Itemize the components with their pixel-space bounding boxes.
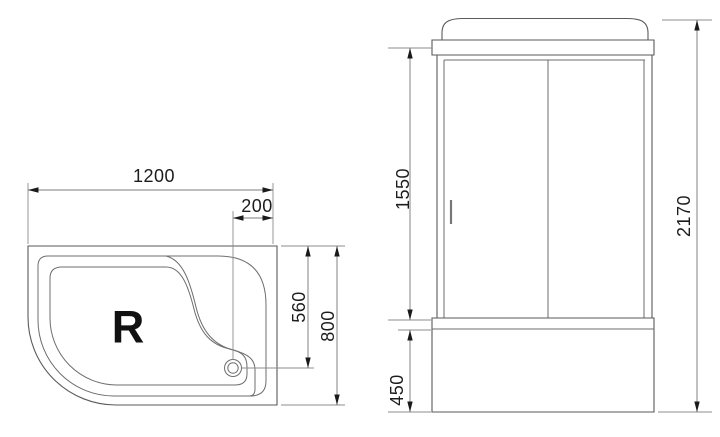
- dim-label-width: 1200: [133, 166, 175, 186]
- technical-drawing-page: 1200 200 560 800 R: [0, 0, 720, 437]
- tray-seat-curve: [166, 256, 255, 396]
- drain-outer-circle: [225, 360, 242, 377]
- dim-label-drain-offset: 200: [241, 196, 273, 216]
- top-frame-bar: [432, 40, 654, 55]
- tray-rim-outline: [38, 256, 266, 396]
- dim-label-base-height: 450: [387, 374, 407, 406]
- shower-cabin-technical-drawing: 1200 200 560 800 R: [0, 0, 720, 437]
- tray-outer-outline: [28, 246, 277, 405]
- top-view: 1200 200 560 800 R: [28, 166, 345, 405]
- roof-dome: [442, 19, 648, 41]
- tray-orientation-label: R: [112, 302, 145, 353]
- dim-label-glass-height: 1550: [393, 168, 413, 210]
- base-panel: [432, 318, 654, 412]
- dim-label-depth: 800: [318, 310, 338, 342]
- drain-inner-circle: [228, 363, 238, 373]
- dim-label-total-height: 2170: [674, 195, 694, 237]
- dim-label-drain-depth: 560: [289, 291, 309, 323]
- tray-basin-outline: [50, 267, 247, 385]
- front-view: 1550 450 2170: [387, 19, 712, 413]
